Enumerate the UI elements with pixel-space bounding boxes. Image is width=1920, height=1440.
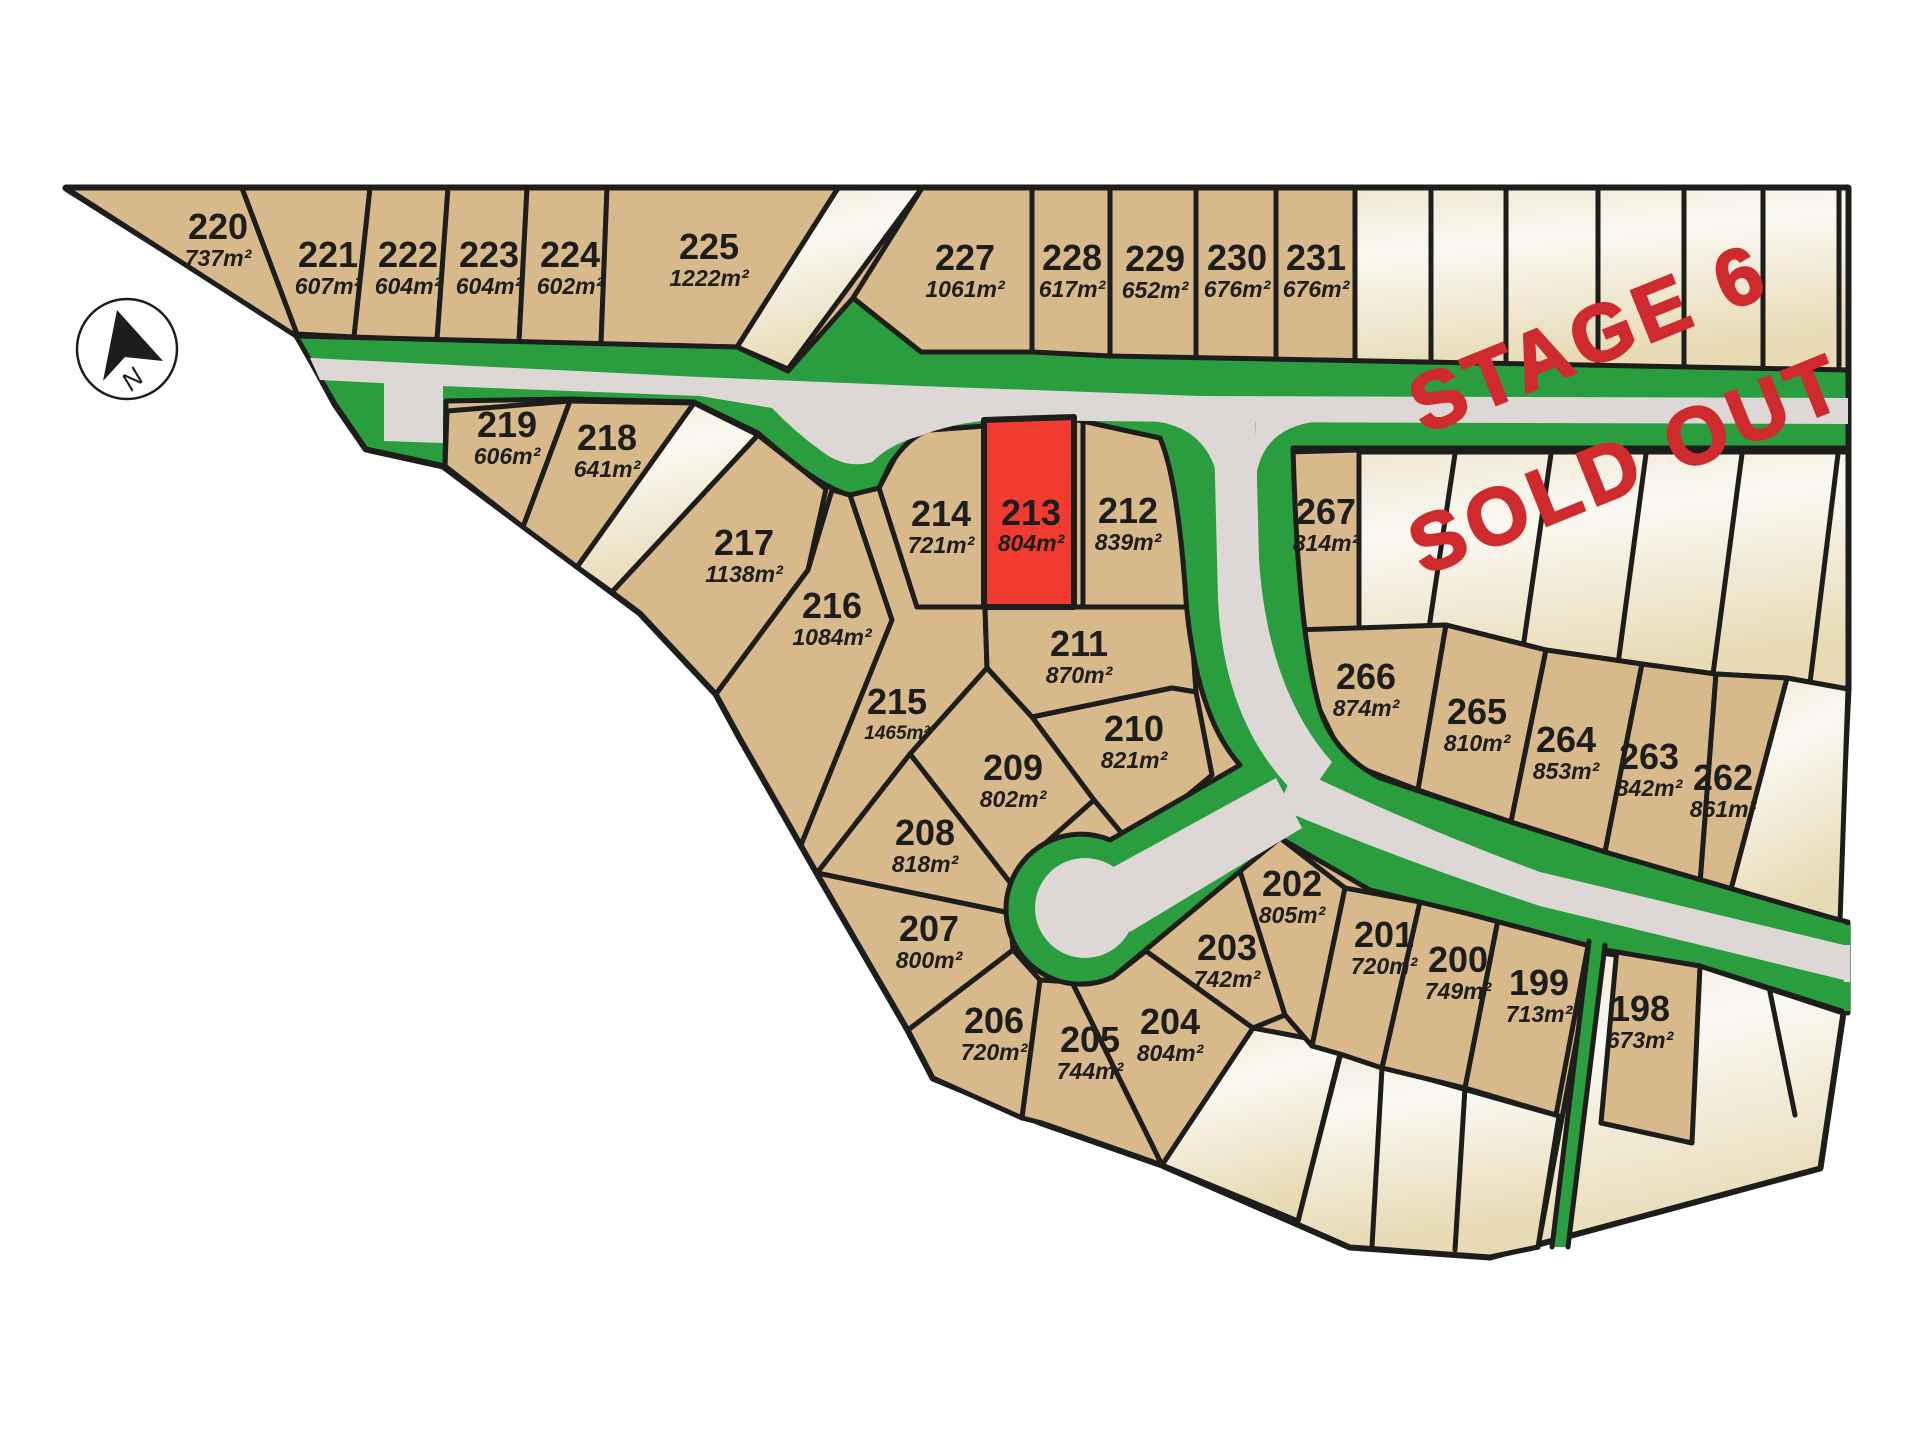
svg-text:264: 264 <box>1536 719 1596 760</box>
svg-text:802m²: 802m² <box>980 786 1048 812</box>
svg-text:217: 217 <box>714 522 774 563</box>
svg-text:814m²: 814m² <box>1293 530 1361 556</box>
svg-text:853m²: 853m² <box>1533 758 1601 784</box>
svg-text:1222m²: 1222m² <box>669 265 750 291</box>
svg-text:861m²: 861m² <box>1690 796 1758 822</box>
svg-text:224: 224 <box>540 234 600 275</box>
svg-text:222: 222 <box>378 234 438 275</box>
svg-text:203: 203 <box>1197 927 1257 968</box>
svg-text:205: 205 <box>1060 1019 1120 1060</box>
svg-text:641m²: 641m² <box>574 456 642 482</box>
svg-text:219: 219 <box>477 404 537 445</box>
svg-text:607m²: 607m² <box>295 273 363 299</box>
svg-text:800m²: 800m² <box>896 947 964 973</box>
svg-text:874m²: 874m² <box>1333 695 1401 721</box>
svg-text:818m²: 818m² <box>892 851 960 877</box>
svg-text:673m²: 673m² <box>1607 1027 1675 1053</box>
svg-text:749m²: 749m² <box>1425 978 1493 1004</box>
svg-text:210: 210 <box>1104 708 1164 749</box>
svg-text:265: 265 <box>1447 691 1507 732</box>
svg-text:225: 225 <box>679 226 739 267</box>
svg-text:206: 206 <box>964 1000 1024 1041</box>
svg-text:742m²: 742m² <box>1194 966 1262 992</box>
svg-text:216: 216 <box>802 585 862 626</box>
svg-text:200: 200 <box>1428 939 1488 980</box>
svg-text:870m²: 870m² <box>1046 662 1114 688</box>
svg-text:810m²: 810m² <box>1444 730 1512 756</box>
svg-text:652m²: 652m² <box>1122 277 1190 303</box>
svg-text:223: 223 <box>459 234 519 275</box>
svg-text:1084m²: 1084m² <box>792 624 873 650</box>
svg-text:1138m²: 1138m² <box>705 561 784 587</box>
svg-text:604m²: 604m² <box>375 273 443 299</box>
svg-text:227: 227 <box>935 237 995 278</box>
svg-text:737m²: 737m² <box>185 245 253 271</box>
svg-text:209: 209 <box>983 747 1043 788</box>
svg-text:229: 229 <box>1125 238 1185 279</box>
svg-text:207: 207 <box>899 908 959 949</box>
svg-text:214: 214 <box>911 493 971 534</box>
svg-text:211: 211 <box>1050 623 1108 664</box>
svg-text:842m²: 842m² <box>1616 775 1684 801</box>
svg-text:720m²: 720m² <box>961 1039 1029 1065</box>
svg-text:228: 228 <box>1042 237 1102 278</box>
svg-text:262: 262 <box>1693 757 1753 798</box>
svg-text:1465m²: 1465m² <box>864 723 930 744</box>
svg-text:720m²: 720m² <box>1351 953 1419 979</box>
svg-text:676m²: 676m² <box>1204 276 1272 302</box>
svg-text:231: 231 <box>1286 237 1346 278</box>
svg-text:804m²: 804m² <box>1137 1040 1205 1066</box>
svg-text:1061m²: 1061m² <box>925 276 1006 302</box>
svg-text:208: 208 <box>895 812 955 853</box>
svg-text:721m²: 721m² <box>908 532 976 558</box>
svg-text:204: 204 <box>1140 1001 1200 1042</box>
svg-text:220: 220 <box>188 206 248 247</box>
svg-text:215: 215 <box>867 681 927 722</box>
svg-text:266: 266 <box>1336 656 1396 697</box>
svg-text:212: 212 <box>1098 490 1158 531</box>
svg-text:602m²: 602m² <box>537 273 605 299</box>
svg-text:604m²: 604m² <box>456 273 524 299</box>
svg-text:617m²: 617m² <box>1039 276 1107 302</box>
svg-text:213: 213 <box>1001 492 1061 533</box>
svg-text:198: 198 <box>1610 988 1670 1029</box>
svg-text:263: 263 <box>1619 736 1679 777</box>
svg-text:221: 221 <box>298 234 358 275</box>
svg-text:201: 201 <box>1354 914 1414 955</box>
svg-text:821m²: 821m² <box>1101 747 1169 773</box>
svg-text:267: 267 <box>1296 491 1356 532</box>
svg-text:744m²: 744m² <box>1057 1058 1125 1084</box>
svg-text:230: 230 <box>1207 237 1267 278</box>
svg-text:713m²: 713m² <box>1506 1001 1574 1027</box>
svg-text:606m²: 606m² <box>474 443 542 469</box>
svg-text:676m²: 676m² <box>1283 276 1351 302</box>
svg-text:839m²: 839m² <box>1095 529 1163 555</box>
svg-text:805m²: 805m² <box>1259 902 1327 928</box>
svg-text:202: 202 <box>1262 863 1322 904</box>
svg-text:218: 218 <box>577 417 637 458</box>
svg-text:804m²: 804m² <box>998 530 1066 556</box>
svg-text:199: 199 <box>1509 962 1569 1003</box>
